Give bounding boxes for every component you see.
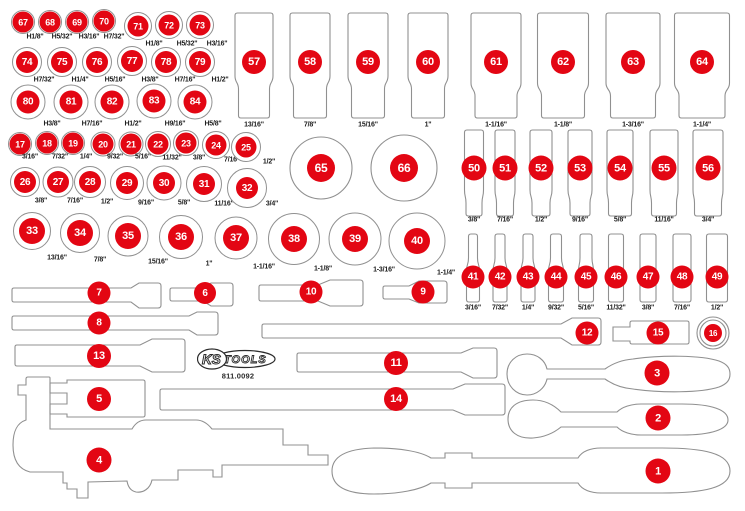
socket-size-label-48: 7/16" bbox=[674, 305, 690, 312]
socket-size-label-60: 1" bbox=[425, 122, 432, 129]
tool-badge-9: 9 bbox=[412, 281, 435, 304]
position-badge-81: 81 bbox=[60, 91, 83, 114]
size-label-84: H5/8" bbox=[204, 121, 221, 128]
tool-outline-14 bbox=[160, 384, 505, 415]
position-badge-23: 23 bbox=[176, 133, 197, 154]
position-badge-37: 37 bbox=[223, 225, 249, 251]
size-label-23: 3/8" bbox=[193, 155, 205, 162]
tool-badge-10: 10 bbox=[300, 281, 323, 304]
socket-badge-56: 56 bbox=[696, 156, 721, 181]
position-badge-65: 65 bbox=[307, 154, 335, 182]
socket-size-label-62: 1-1/8" bbox=[554, 122, 572, 129]
socket-size-label-42: 7/32" bbox=[492, 305, 508, 312]
socket-size-label-54: 5/8" bbox=[614, 217, 626, 224]
socket-badge-54: 54 bbox=[608, 156, 633, 181]
position-badge-30: 30 bbox=[153, 172, 175, 194]
position-badge-77: 77 bbox=[121, 50, 143, 72]
socket-size-label-57: 13/16" bbox=[244, 122, 264, 129]
socket-badge-45: 45 bbox=[575, 266, 598, 289]
tool-outline-8 bbox=[12, 312, 218, 335]
tool-badge-16: 16 bbox=[704, 324, 722, 342]
tool-badge-3: 3 bbox=[645, 361, 670, 386]
size-label-25: 1/2" bbox=[263, 159, 275, 166]
socket-badge-43: 43 bbox=[517, 266, 540, 289]
size-label-70: H7/32" bbox=[104, 34, 125, 41]
size-label-81: H7/16" bbox=[82, 121, 103, 128]
socket-badge-52: 52 bbox=[529, 156, 554, 181]
socket-badge-51: 51 bbox=[493, 156, 518, 181]
socket-size-label-59: 15/16" bbox=[358, 122, 378, 129]
socket-size-label-52: 1/2" bbox=[535, 217, 547, 224]
tool-badge-6: 6 bbox=[194, 282, 216, 304]
size-label-20: 9/32" bbox=[107, 154, 123, 161]
position-badge-84: 84 bbox=[184, 91, 207, 114]
logo-tools-text: TOOLS bbox=[224, 354, 267, 366]
position-badge-69: 69 bbox=[67, 12, 88, 33]
position-badge-78: 78 bbox=[155, 51, 177, 73]
position-badge-33: 33 bbox=[19, 218, 45, 244]
size-label-26: 3/8" bbox=[35, 198, 47, 205]
tool-outline-3 bbox=[507, 354, 730, 395]
socket-size-label-51: 7/16" bbox=[497, 217, 513, 224]
socket-badge-49: 49 bbox=[706, 266, 729, 289]
socket-badge-47: 47 bbox=[637, 266, 660, 289]
socket-size-label-47: 3/8" bbox=[642, 305, 654, 312]
tool-badge-13: 13 bbox=[87, 344, 111, 368]
size-label-28: 1/2" bbox=[101, 199, 113, 206]
tool-badge-1: 1 bbox=[646, 459, 671, 484]
tool-tray-inlay-diagram: TOOLS KS 811.0092 67H1/8"68H5/32"69H3/16… bbox=[0, 0, 745, 511]
position-badge-73: 73 bbox=[190, 15, 211, 36]
size-label-32: 3/4" bbox=[266, 201, 278, 208]
position-badge-66: 66 bbox=[390, 154, 418, 182]
tool-badge-5: 5 bbox=[87, 387, 111, 411]
socket-size-label-53: 9/16" bbox=[572, 217, 588, 224]
socket-badge-48: 48 bbox=[671, 266, 694, 289]
position-badge-82: 82 bbox=[101, 91, 124, 114]
socket-size-label-41: 3/16" bbox=[465, 305, 481, 312]
position-badge-79: 79 bbox=[189, 51, 211, 73]
socket-badge-53: 53 bbox=[568, 156, 593, 181]
size-label-35: 15/16" bbox=[148, 259, 168, 266]
tool-outline-12 bbox=[262, 318, 601, 345]
size-label-22: 11/32" bbox=[162, 155, 181, 162]
position-badge-29: 29 bbox=[116, 172, 138, 194]
size-label-19: 1/4" bbox=[80, 154, 92, 161]
position-badge-38: 38 bbox=[281, 226, 307, 252]
position-badge-74: 74 bbox=[16, 51, 38, 73]
socket-size-label-56: 3/4" bbox=[702, 217, 714, 224]
position-badge-18: 18 bbox=[37, 133, 58, 154]
position-badge-83: 83 bbox=[143, 90, 166, 113]
size-label-38: 1-1/8" bbox=[314, 266, 332, 273]
size-label-69: H3/16" bbox=[79, 34, 100, 41]
position-badge-27: 27 bbox=[47, 171, 69, 193]
position-badge-24: 24 bbox=[206, 135, 227, 156]
position-badge-70: 70 bbox=[94, 11, 115, 32]
position-badge-25: 25 bbox=[236, 137, 257, 158]
position-badge-35: 35 bbox=[115, 223, 141, 249]
part-number: 811.0092 bbox=[222, 372, 254, 381]
position-badge-68: 68 bbox=[40, 12, 61, 33]
position-badge-40: 40 bbox=[404, 228, 430, 254]
socket-badge-62: 62 bbox=[551, 50, 575, 74]
tool-badge-14: 14 bbox=[384, 387, 408, 411]
size-label-27: 7/16" bbox=[67, 198, 83, 205]
socket-size-label-43: 1/4" bbox=[522, 305, 534, 312]
socket-size-label-44: 9/32" bbox=[548, 305, 564, 312]
size-label-29: 9/16" bbox=[138, 200, 154, 207]
size-label-83: H9/16" bbox=[165, 121, 186, 128]
size-label-36: 1" bbox=[206, 261, 213, 268]
socket-badge-50: 50 bbox=[462, 156, 487, 181]
socket-badge-60: 60 bbox=[416, 50, 440, 74]
size-label-21: 5/16" bbox=[135, 154, 151, 161]
size-label-82: H1/2" bbox=[124, 121, 141, 128]
position-badge-17: 17 bbox=[10, 134, 31, 155]
tool-badge-4: 4 bbox=[87, 448, 112, 473]
position-badge-36: 36 bbox=[168, 224, 194, 250]
size-label-31: 11/16" bbox=[214, 201, 233, 208]
logo-ks-text: KS bbox=[202, 352, 221, 367]
position-badge-39: 39 bbox=[342, 226, 368, 252]
position-badge-19: 19 bbox=[63, 133, 84, 154]
size-label-33: 13/16" bbox=[47, 255, 67, 262]
size-label-72: H5/32" bbox=[177, 41, 198, 48]
socket-size-label-64: 1-1/4" bbox=[693, 122, 711, 129]
size-label-77: H3/8" bbox=[141, 77, 158, 84]
socket-size-label-50: 3/8" bbox=[468, 217, 480, 224]
socket-badge-58: 58 bbox=[298, 50, 322, 74]
position-badge-20: 20 bbox=[93, 134, 114, 155]
position-badge-32: 32 bbox=[236, 177, 258, 199]
position-badge-21: 21 bbox=[121, 134, 142, 155]
size-label-80: H3/8" bbox=[43, 121, 60, 128]
socket-size-label-45: 5/16" bbox=[578, 305, 594, 312]
position-badge-80: 80 bbox=[17, 91, 40, 114]
position-badge-76: 76 bbox=[86, 51, 108, 73]
socket-size-label-61: 1-1/16" bbox=[485, 122, 507, 129]
size-label-78: H7/16" bbox=[175, 77, 196, 84]
position-badge-22: 22 bbox=[148, 134, 169, 155]
socket-badge-61: 61 bbox=[484, 50, 508, 74]
size-label-39: 1-3/16" bbox=[373, 267, 395, 274]
tool-badge-8: 8 bbox=[88, 312, 111, 335]
size-label-34: 7/8" bbox=[94, 257, 106, 264]
socket-size-label-55: 11/16" bbox=[654, 217, 673, 224]
socket-badge-55: 55 bbox=[652, 156, 677, 181]
socket-badge-41: 41 bbox=[462, 266, 485, 289]
tool-badge-7: 7 bbox=[88, 282, 111, 305]
tool-badge-15: 15 bbox=[647, 322, 670, 345]
socket-size-label-46: 11/32" bbox=[606, 305, 625, 312]
size-label-79: H1/2" bbox=[211, 77, 228, 84]
socket-size-label-49: 1/2" bbox=[711, 305, 723, 312]
position-badge-34: 34 bbox=[67, 220, 93, 246]
position-badge-67: 67 bbox=[13, 12, 34, 33]
size-label-37: 1-1/16" bbox=[253, 264, 275, 271]
socket-size-label-63: 1-3/16" bbox=[622, 122, 644, 129]
tool-outline-4 bbox=[13, 377, 328, 498]
size-label-17: 3/16" bbox=[22, 154, 38, 161]
position-badge-28: 28 bbox=[79, 171, 101, 193]
socket-badge-46: 46 bbox=[605, 266, 628, 289]
tool-badge-2: 2 bbox=[646, 406, 671, 431]
socket-badge-64: 64 bbox=[690, 50, 714, 74]
tool-badge-12: 12 bbox=[576, 322, 599, 345]
position-badge-75: 75 bbox=[51, 51, 73, 73]
socket-badge-57: 57 bbox=[242, 50, 266, 74]
tool-outline-7 bbox=[12, 283, 161, 308]
size-label-71: H1/8" bbox=[145, 41, 162, 48]
socket-badge-59: 59 bbox=[356, 50, 380, 74]
position-badge-71: 71 bbox=[128, 16, 149, 37]
socket-size-label-58: 7/8" bbox=[304, 122, 316, 129]
socket-badge-44: 44 bbox=[545, 266, 568, 289]
tool-outline-2 bbox=[508, 400, 728, 438]
position-badge-72: 72 bbox=[159, 15, 180, 36]
socket-badge-63: 63 bbox=[621, 50, 645, 74]
position-badge-26: 26 bbox=[14, 171, 36, 193]
size-label-67: H1/8" bbox=[26, 34, 43, 41]
size-label-18: 7/32" bbox=[52, 154, 68, 161]
size-label-74: H7/32" bbox=[34, 77, 55, 84]
size-label-75: H1/4" bbox=[71, 77, 88, 84]
size-label-68: H5/32" bbox=[52, 34, 73, 41]
size-label-40: 1-1/4" bbox=[437, 270, 455, 277]
position-badge-31: 31 bbox=[193, 173, 215, 195]
size-label-76: H5/16" bbox=[105, 77, 126, 84]
size-label-73: H3/16" bbox=[207, 41, 228, 48]
size-label-30: 5/8" bbox=[178, 200, 190, 207]
socket-badge-42: 42 bbox=[489, 266, 512, 289]
tool-badge-11: 11 bbox=[384, 351, 408, 375]
